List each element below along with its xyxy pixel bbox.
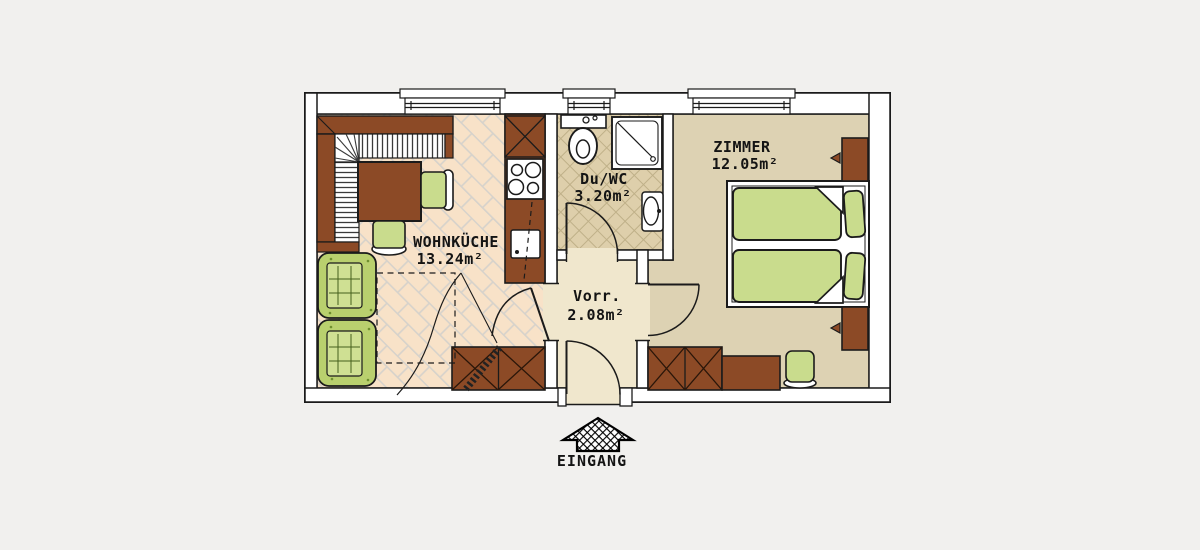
label-zimmer: ZIMMER: [713, 138, 771, 156]
sofa-cushion: [327, 331, 362, 376]
stove: [507, 159, 543, 199]
entrance-jamb-right: [620, 388, 632, 406]
floor-vorraum: [557, 260, 637, 388]
label-wohnkueche: WOHNKÜCHE: [413, 232, 499, 251]
dining-table: [358, 162, 421, 221]
kitchen-counter: [505, 114, 545, 283]
entrance-marker: EINGANG: [557, 418, 633, 470]
window-du-wc: [563, 89, 615, 114]
label-du-wc: Du/WC: [580, 170, 628, 188]
window-zimmer: [688, 89, 795, 114]
opening-zimmer: [635, 284, 650, 340]
dining-chair-right: [421, 170, 453, 210]
pillow: [843, 190, 865, 237]
label-vorraum-area: 2.08m²: [567, 306, 624, 324]
wall-kitchen-hall: [545, 114, 557, 388]
floor-plan-drawing: WOHNKÜCHE 13.24m² Du/WC 3.20m² Vorr. 2.0…: [0, 0, 1200, 550]
dining-chair-bottom: [372, 221, 406, 255]
windows: [400, 89, 795, 114]
double-bed: [727, 181, 869, 307]
sofa-cushion: [327, 263, 362, 308]
stool: [784, 351, 816, 388]
opening-entrance: [566, 387, 620, 405]
wall-bath-zimmer: [663, 114, 673, 260]
sofa: [318, 253, 376, 386]
sideboard: [722, 356, 780, 390]
label-zimmer-area: 12.05m²: [712, 155, 779, 173]
label-vorraum: Vorr.: [573, 287, 621, 305]
floor-plan-page: WOHNKÜCHE 13.24m² Du/WC 3.20m² Vorr. 2.0…: [0, 0, 1200, 550]
tall-cabinet: [505, 116, 545, 157]
kitchen-sink: [511, 230, 540, 258]
wall-left: [305, 93, 317, 402]
pillow: [843, 252, 865, 299]
label-du-wc-area: 3.20m²: [574, 187, 631, 205]
window-wohnkueche: [400, 89, 505, 114]
entrance-jamb-left: [558, 388, 566, 406]
entrance-arrow-icon: [563, 418, 633, 451]
shower: [612, 117, 662, 169]
washbasin: [642, 192, 663, 231]
label-wohnkueche-area: 13.24m²: [417, 250, 484, 268]
label-entrance: EINGANG: [557, 452, 627, 470]
opening-bath: [567, 248, 617, 262]
wall-right: [869, 93, 890, 402]
